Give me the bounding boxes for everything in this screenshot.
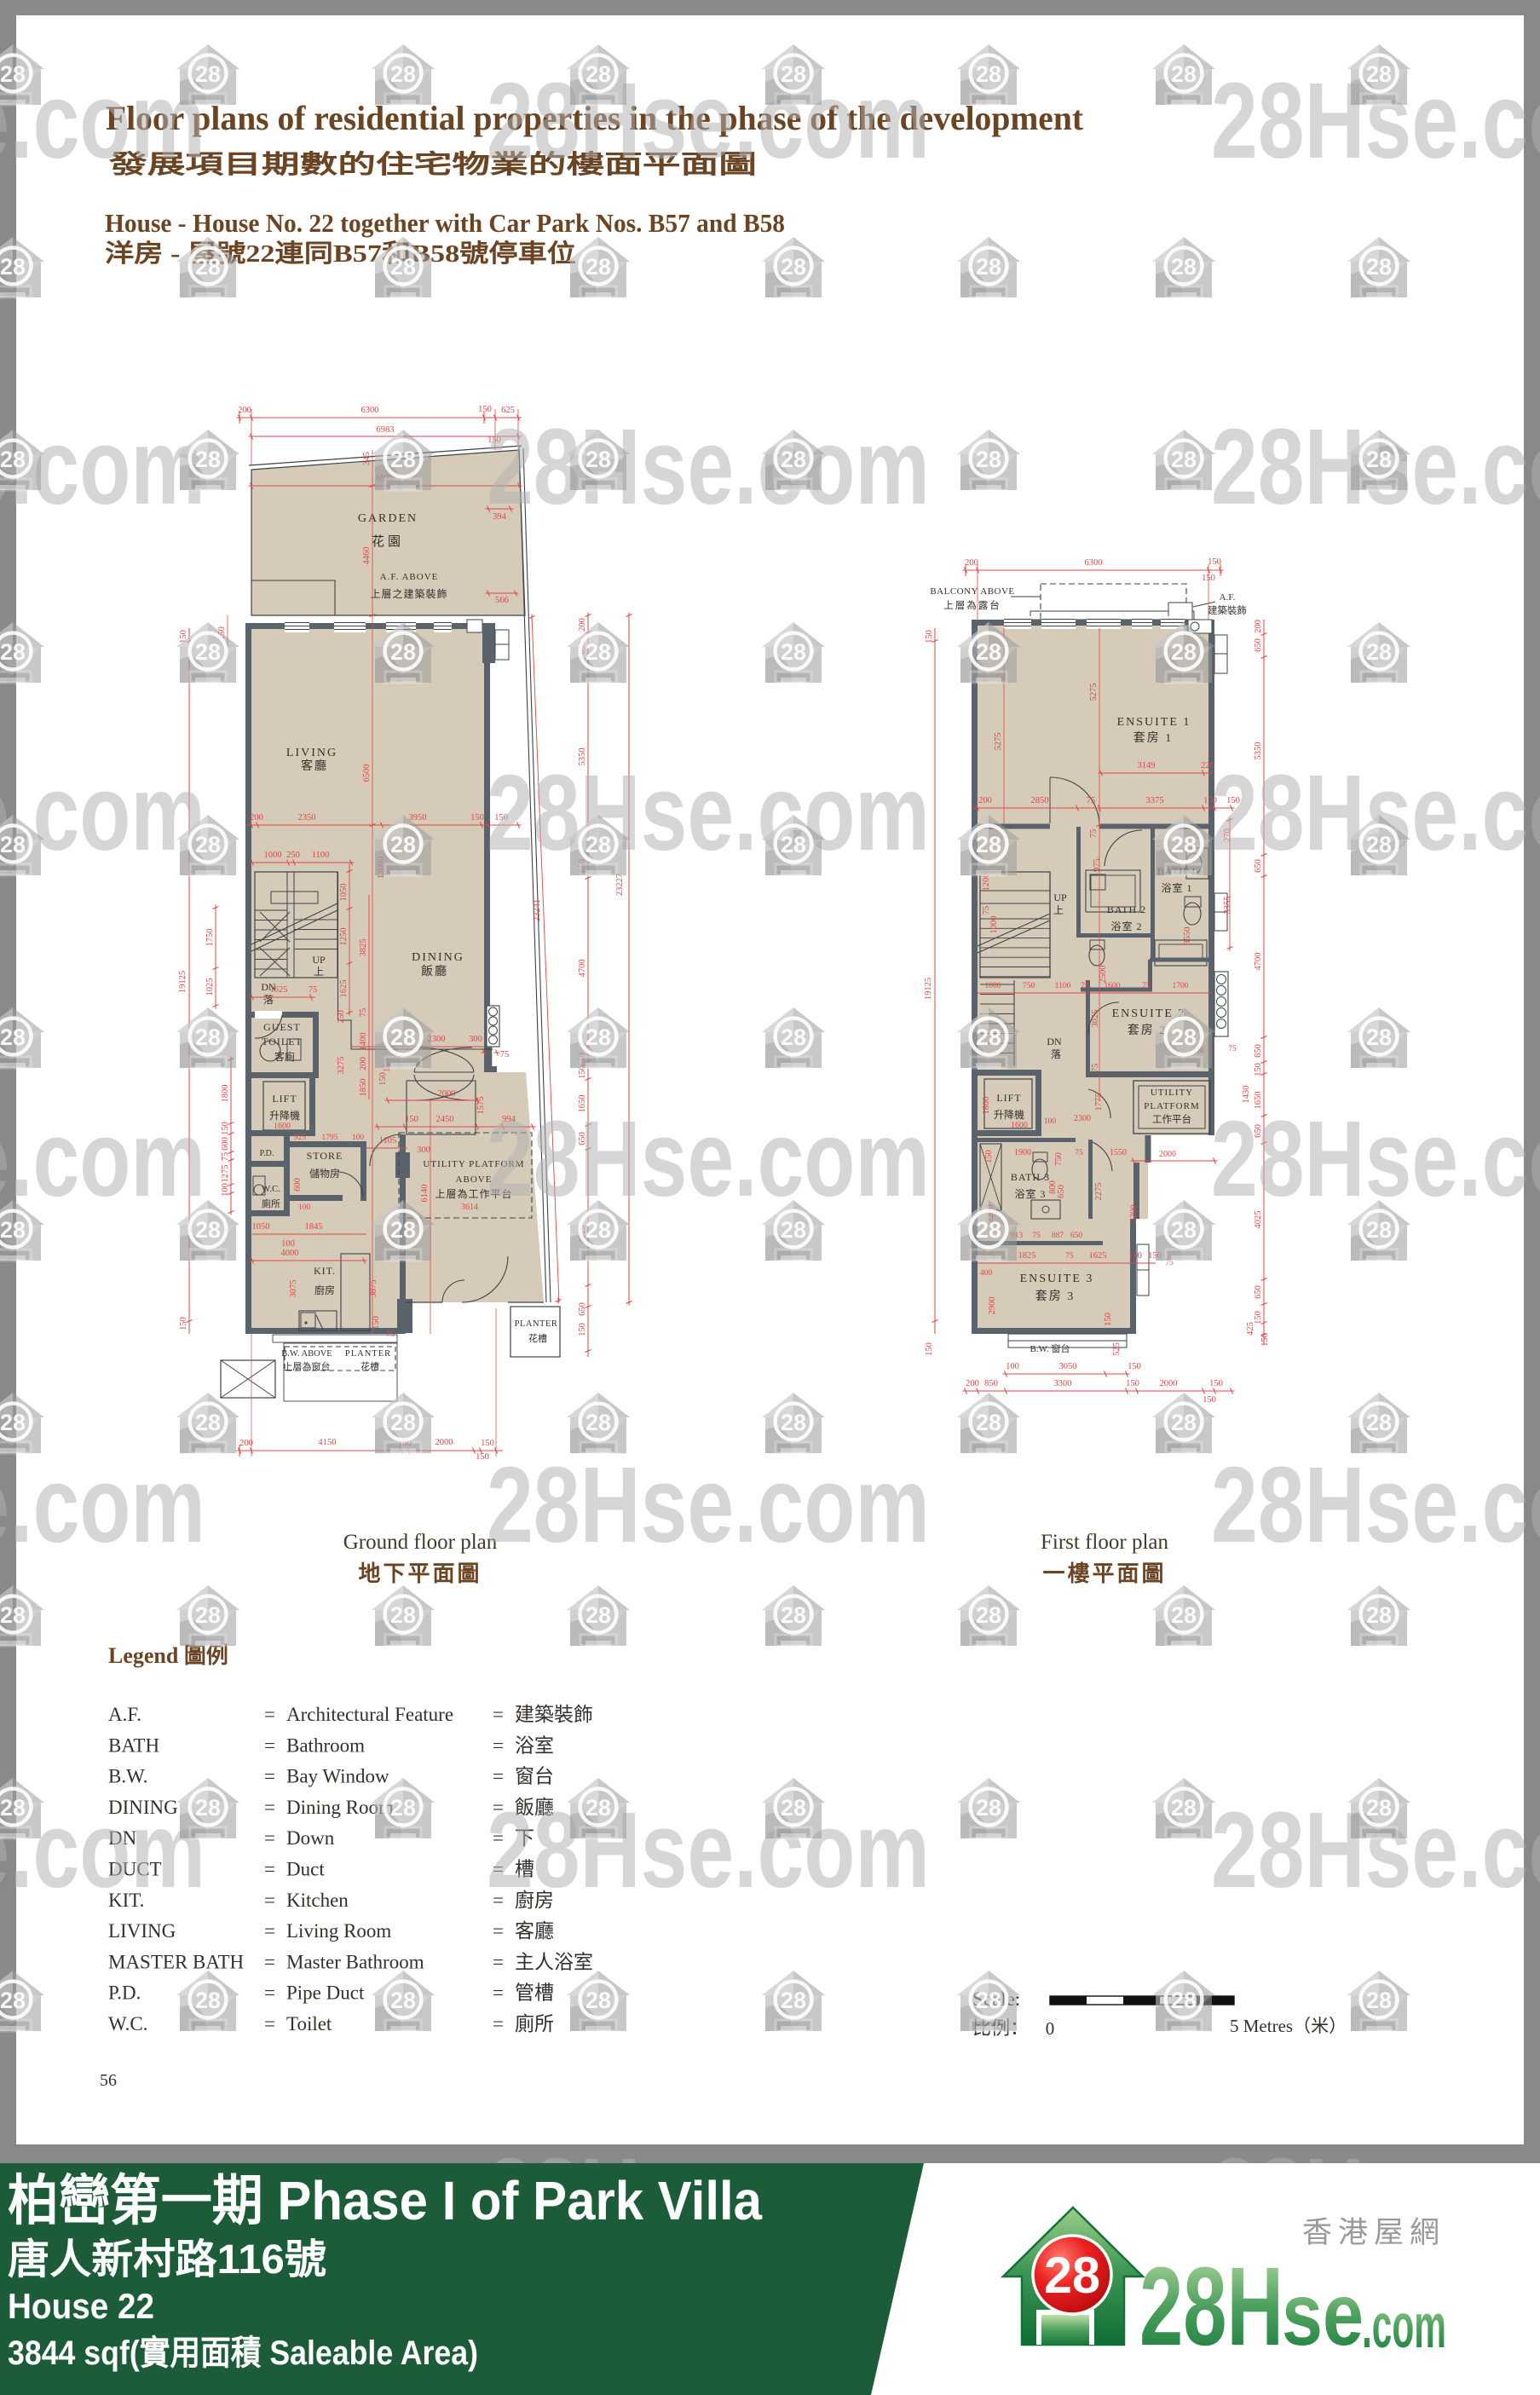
svg-text:150: 150 xyxy=(1128,1362,1141,1371)
svg-text:DUCT: DUCT xyxy=(108,1859,162,1880)
svg-text:75: 75 xyxy=(982,906,991,915)
svg-text:75: 75 xyxy=(359,1008,368,1018)
svg-text:=: = xyxy=(264,1890,275,1911)
svg-text:浴室: 浴室 xyxy=(515,1734,554,1756)
svg-text:913: 913 xyxy=(1011,1232,1024,1240)
svg-text:2200: 2200 xyxy=(986,1205,995,1223)
svg-text:Dining Room: Dining Room xyxy=(286,1797,394,1818)
svg-text:525: 525 xyxy=(1112,1342,1122,1356)
svg-text:1600: 1600 xyxy=(1011,1121,1028,1130)
svg-text:1550: 1550 xyxy=(1110,1148,1127,1157)
svg-text:A.F.: A.F. xyxy=(108,1704,141,1725)
svg-text:客廁: 客廁 xyxy=(274,1050,295,1063)
svg-text:=: = xyxy=(264,1951,275,1972)
svg-text:3550: 3550 xyxy=(1183,927,1192,945)
svg-text:=: = xyxy=(264,1920,275,1942)
svg-text:2000: 2000 xyxy=(438,1089,456,1099)
svg-text:ENSUITE 2: ENSUITE 2 xyxy=(1112,1007,1186,1020)
svg-text:Bay Window: Bay Window xyxy=(286,1766,389,1787)
svg-text:3355: 3355 xyxy=(1223,897,1232,915)
svg-text:=: = xyxy=(493,1890,504,1911)
svg-text:LIFT: LIFT xyxy=(272,1093,297,1105)
svg-text:75: 75 xyxy=(1081,982,1089,990)
svg-text:925: 925 xyxy=(294,1134,307,1142)
svg-text:650: 650 xyxy=(578,1132,587,1146)
svg-text:主人浴室: 主人浴室 xyxy=(515,1951,593,1972)
svg-text:3825: 3825 xyxy=(359,939,368,957)
svg-text:600: 600 xyxy=(221,1137,230,1151)
svg-text:6983: 6983 xyxy=(377,425,395,435)
svg-text:600: 600 xyxy=(293,1178,303,1192)
svg-text:200: 200 xyxy=(359,1057,368,1071)
svg-text:1275: 1275 xyxy=(221,1165,230,1183)
svg-text:BATH 3: BATH 3 xyxy=(1011,1171,1050,1183)
svg-text:200: 200 xyxy=(965,558,978,568)
svg-text:GUEST: GUEST xyxy=(263,1021,301,1033)
svg-text:Toilet: Toilet xyxy=(286,2013,332,2034)
svg-text:1650: 1650 xyxy=(578,1095,587,1113)
svg-text:STORE: STORE xyxy=(307,1150,343,1162)
svg-text:650: 650 xyxy=(578,1053,587,1066)
svg-text:75: 75 xyxy=(1142,982,1151,990)
svg-text:650: 650 xyxy=(1254,638,1263,652)
svg-text:5350: 5350 xyxy=(578,748,587,766)
svg-text:浴室 2: 浴室 2 xyxy=(1110,920,1142,932)
svg-text:上層為露台: 上層為露台 xyxy=(943,599,1001,611)
svg-text:=: = xyxy=(493,1982,504,2004)
svg-text:650: 650 xyxy=(1254,1124,1263,1138)
svg-text:200: 200 xyxy=(578,618,587,632)
svg-text:1775: 1775 xyxy=(1094,1094,1104,1111)
svg-text:Architectural Feature: Architectural Feature xyxy=(286,1704,453,1725)
svg-text:2000: 2000 xyxy=(1160,1379,1178,1388)
svg-text:23241: 23241 xyxy=(533,899,542,921)
svg-text:Floor plans of residential pro: Floor plans of residential properties in… xyxy=(106,99,1084,137)
svg-text:UTILITY: UTILITY xyxy=(1151,1088,1193,1098)
svg-text:200: 200 xyxy=(978,796,992,805)
svg-text:300: 300 xyxy=(417,1146,430,1155)
svg-text:1105: 1105 xyxy=(379,1136,397,1146)
svg-text:994: 994 xyxy=(502,1115,516,1124)
svg-text:2500: 2500 xyxy=(1099,966,1108,984)
svg-text:5200: 5200 xyxy=(1129,1205,1139,1223)
svg-text:200: 200 xyxy=(1254,620,1263,633)
svg-text:2275: 2275 xyxy=(1094,1183,1104,1201)
svg-text:887: 887 xyxy=(1052,1232,1064,1240)
svg-text:150: 150 xyxy=(1203,1395,1216,1405)
svg-text:5275: 5275 xyxy=(994,733,1003,751)
svg-text:升降機: 升降機 xyxy=(269,1109,300,1122)
svg-text:=: = xyxy=(264,1982,275,2004)
svg-text:150: 150 xyxy=(487,436,501,445)
svg-text:150: 150 xyxy=(383,1059,392,1072)
svg-text:KIT.: KIT. xyxy=(314,1265,336,1277)
svg-text:150: 150 xyxy=(1260,1333,1270,1347)
svg-text:=: = xyxy=(264,1859,275,1880)
svg-text:GARDEN: GARDEN xyxy=(358,512,418,525)
svg-text:3950: 3950 xyxy=(409,813,427,822)
svg-text:75: 75 xyxy=(1089,829,1099,839)
svg-text:625: 625 xyxy=(501,406,515,415)
svg-text:150: 150 xyxy=(405,1115,418,1124)
svg-text:=: = xyxy=(493,1734,504,1756)
svg-text:800: 800 xyxy=(1048,1180,1058,1194)
svg-text:Living Room: Living Room xyxy=(286,1920,391,1942)
svg-text:5350: 5350 xyxy=(1254,742,1263,760)
svg-text:19125: 19125 xyxy=(924,978,933,1000)
svg-text:75: 75 xyxy=(987,1252,995,1261)
svg-text:Down: Down xyxy=(286,1827,335,1849)
svg-text:650: 650 xyxy=(1254,1285,1263,1299)
svg-text:se: se xyxy=(1282,2265,1364,2364)
svg-text:345: 345 xyxy=(362,452,372,465)
svg-text:1845: 1845 xyxy=(305,1222,323,1232)
svg-text:4700: 4700 xyxy=(578,960,587,978)
svg-text:花槽: 花槽 xyxy=(360,1361,379,1372)
svg-text:1100: 1100 xyxy=(312,851,330,860)
svg-text:Bathroom: Bathroom xyxy=(286,1734,365,1756)
svg-text:300: 300 xyxy=(1191,1047,1204,1055)
svg-text:56: 56 xyxy=(100,2071,117,2090)
svg-text:4150: 4150 xyxy=(319,1438,337,1447)
svg-text:1600: 1600 xyxy=(274,1122,291,1131)
svg-text:一樓平面圖: 一樓平面圖 xyxy=(1042,1561,1166,1586)
svg-text:管槽: 管槽 xyxy=(515,1982,554,2004)
svg-text:75: 75 xyxy=(1228,1045,1237,1053)
svg-text:4025: 4025 xyxy=(1254,1211,1263,1229)
svg-text:6500: 6500 xyxy=(362,765,372,782)
svg-text:=: = xyxy=(264,1766,275,1787)
svg-text:1025: 1025 xyxy=(205,978,215,996)
svg-text:A.F. ABOVE: A.F. ABOVE xyxy=(380,572,439,582)
svg-text:儲物房: 儲物房 xyxy=(309,1167,340,1180)
svg-text:唐人新村路116號: 唐人新村路116號 xyxy=(8,2236,326,2282)
svg-text:12000: 12000 xyxy=(377,857,386,879)
svg-text:150: 150 xyxy=(398,1439,412,1448)
svg-text:150: 150 xyxy=(1226,796,1240,805)
svg-text:3050: 3050 xyxy=(1059,1362,1077,1371)
svg-text:=: = xyxy=(264,1704,275,1725)
svg-text:3614: 3614 xyxy=(461,1203,478,1212)
svg-text:B.W. ABOVE: B.W. ABOVE xyxy=(281,1349,332,1359)
svg-text:建築裝飾: 建築裝飾 xyxy=(1208,604,1247,616)
svg-text:75: 75 xyxy=(221,1152,230,1162)
svg-text:1825: 1825 xyxy=(1018,1251,1036,1261)
svg-text:上層為窗台: 上層為窗台 xyxy=(284,1360,331,1372)
svg-text:BATH 1: BATH 1 xyxy=(1157,865,1197,877)
svg-text:First floor plan: First floor plan xyxy=(1041,1531,1168,1554)
svg-text:650: 650 xyxy=(1070,1232,1083,1240)
svg-text:PLATFORM: PLATFORM xyxy=(1144,1101,1199,1111)
svg-text:150: 150 xyxy=(476,1452,489,1462)
svg-text:100: 100 xyxy=(1044,1117,1057,1126)
svg-text:650: 650 xyxy=(1057,1185,1066,1198)
svg-text:1625: 1625 xyxy=(1089,1251,1107,1261)
svg-text:150: 150 xyxy=(1208,557,1221,567)
svg-text:香港屋網: 香港屋網 xyxy=(1302,2216,1445,2249)
svg-text:650: 650 xyxy=(1254,859,1263,873)
svg-text:150: 150 xyxy=(221,1122,230,1135)
svg-text:750: 750 xyxy=(1023,982,1035,990)
svg-text:P.D.: P.D. xyxy=(260,1149,274,1158)
svg-text:200: 200 xyxy=(250,813,263,822)
svg-text:150: 150 xyxy=(478,405,492,414)
svg-text:套房 3: 套房 3 xyxy=(1035,1290,1076,1303)
svg-text:Duct: Duct xyxy=(286,1859,325,1880)
svg-text:落: 落 xyxy=(263,994,274,1006)
svg-text:75: 75 xyxy=(1091,1064,1100,1073)
svg-text:394: 394 xyxy=(493,512,507,522)
svg-text:PLANTER: PLANTER xyxy=(345,1349,391,1359)
svg-text:UP: UP xyxy=(1053,892,1067,903)
svg-text:1250: 1250 xyxy=(339,928,349,946)
svg-text:750: 750 xyxy=(1054,1152,1064,1166)
svg-text:4025: 4025 xyxy=(578,1226,587,1244)
svg-text:=: = xyxy=(493,1920,504,1942)
svg-text:=: = xyxy=(264,1827,275,1849)
svg-text:300: 300 xyxy=(469,1035,482,1044)
svg-text:3875: 3875 xyxy=(369,1280,378,1298)
svg-text:4700: 4700 xyxy=(1254,953,1263,971)
svg-text:ENSUITE 3: ENSUITE 3 xyxy=(1020,1273,1094,1285)
svg-text:=: = xyxy=(493,1797,504,1818)
svg-text:566: 566 xyxy=(495,596,509,605)
svg-text:下: 下 xyxy=(515,1827,534,1849)
svg-text:1750: 1750 xyxy=(205,929,215,947)
svg-text:DINING: DINING xyxy=(412,951,464,964)
svg-text:B.W.: B.W. xyxy=(108,1766,147,1787)
svg-text:KIT.: KIT. xyxy=(108,1890,144,1911)
svg-text:6300: 6300 xyxy=(361,406,379,415)
svg-text:650: 650 xyxy=(578,641,587,655)
svg-text:上: 上 xyxy=(1053,904,1064,916)
svg-text:650: 650 xyxy=(578,859,587,873)
svg-text:200: 200 xyxy=(966,1379,979,1388)
svg-text:MASTER BATH: MASTER BATH xyxy=(108,1951,244,1972)
svg-text:425: 425 xyxy=(1246,1322,1255,1336)
svg-text:650: 650 xyxy=(1254,1044,1263,1058)
svg-text:客廳: 客廳 xyxy=(515,1920,554,1942)
svg-text:=: = xyxy=(264,1797,275,1818)
svg-text:28H: 28H xyxy=(1139,2243,1283,2369)
svg-text:75: 75 xyxy=(1165,1259,1174,1267)
svg-text:P.D.: P.D. xyxy=(108,1982,141,2004)
svg-text:1900: 1900 xyxy=(1014,1148,1031,1157)
svg-text:=: = xyxy=(493,1766,504,1787)
svg-text:1575: 1575 xyxy=(476,1097,486,1115)
svg-text:1625: 1625 xyxy=(270,985,288,995)
svg-text:3149: 3149 xyxy=(1138,761,1156,770)
svg-text:=: = xyxy=(493,1951,504,1972)
svg-text:=: = xyxy=(493,1827,504,1849)
svg-text:廚房: 廚房 xyxy=(314,1284,335,1296)
svg-text:75: 75 xyxy=(309,985,318,995)
svg-text:=: = xyxy=(493,1859,504,1880)
svg-text:BATH: BATH xyxy=(108,1734,159,1756)
svg-text:PLANTER: PLANTER xyxy=(515,1319,558,1329)
svg-text:ENSUITE 1: ENSUITE 1 xyxy=(1117,716,1191,729)
svg-text:1000: 1000 xyxy=(985,982,1001,990)
svg-text:1050: 1050 xyxy=(339,884,349,902)
svg-text:2000: 2000 xyxy=(1159,1150,1176,1159)
svg-text:150: 150 xyxy=(1126,1379,1139,1388)
svg-text:75: 75 xyxy=(1075,1149,1083,1157)
svg-text:UTILITY PLATFORM: UTILITY PLATFORM xyxy=(423,1159,524,1169)
svg-text:6300: 6300 xyxy=(1085,558,1103,568)
svg-text:LIVING: LIVING xyxy=(286,747,337,759)
svg-text:廁所: 廁所 xyxy=(515,2013,554,2034)
svg-text:19125: 19125 xyxy=(178,971,187,993)
svg-text:A.F.: A.F. xyxy=(1220,592,1236,603)
svg-text:升降機: 升降機 xyxy=(994,1108,1024,1121)
svg-text:150: 150 xyxy=(1203,796,1217,805)
svg-text:150: 150 xyxy=(217,626,227,640)
svg-text:2300: 2300 xyxy=(1074,1114,1091,1123)
svg-text:BALCONY ABOVE: BALCONY ABOVE xyxy=(930,586,1014,597)
svg-text:1400: 1400 xyxy=(359,1033,368,1051)
svg-text:150: 150 xyxy=(578,1323,587,1336)
svg-text:Pipe Duct: Pipe Duct xyxy=(286,1982,365,2004)
svg-text:150: 150 xyxy=(470,813,484,822)
svg-text:浴室 3: 浴室 3 xyxy=(1014,1187,1046,1200)
svg-text:浴室 1: 浴室 1 xyxy=(1161,881,1192,894)
svg-text:3375: 3375 xyxy=(1146,796,1164,805)
svg-text:1850: 1850 xyxy=(359,1079,368,1097)
svg-text:窗台: 窗台 xyxy=(515,1766,554,1787)
svg-text:3075: 3075 xyxy=(289,1280,298,1298)
svg-text:DINING: DINING xyxy=(108,1797,178,1818)
svg-text:226: 226 xyxy=(1201,761,1214,770)
svg-text:200: 200 xyxy=(239,1439,253,1448)
svg-text:975: 975 xyxy=(1093,858,1102,872)
svg-text:1800: 1800 xyxy=(982,1097,991,1115)
svg-text:1700: 1700 xyxy=(1173,982,1189,990)
svg-text:1100: 1100 xyxy=(1055,982,1071,990)
svg-text:150: 150 xyxy=(378,1072,388,1086)
svg-text:=: = xyxy=(264,2013,275,2034)
svg-text:100: 100 xyxy=(281,1239,295,1249)
svg-text:75: 75 xyxy=(1065,1252,1074,1261)
svg-text:270: 270 xyxy=(1223,828,1232,842)
svg-text:House 22: House 22 xyxy=(8,2286,154,2326)
svg-text:=: = xyxy=(493,2013,504,2034)
svg-text:ABOVE: ABOVE xyxy=(456,1174,493,1185)
svg-text:W.C.: W.C. xyxy=(108,2013,147,2034)
svg-text:150: 150 xyxy=(925,1342,934,1356)
svg-text:100: 100 xyxy=(221,1183,230,1197)
svg-text:150: 150 xyxy=(925,630,934,643)
svg-text:花槽: 花槽 xyxy=(528,1333,547,1344)
svg-text:3025: 3025 xyxy=(1091,1010,1100,1028)
svg-text:150: 150 xyxy=(481,1439,494,1448)
svg-text:23227: 23227 xyxy=(615,874,625,896)
svg-text:150: 150 xyxy=(1254,1063,1263,1076)
svg-text:House - House No. 22 together: House - House No. 22 together with Car P… xyxy=(105,208,785,238)
svg-text:100: 100 xyxy=(352,1134,365,1142)
svg-text:2450: 2450 xyxy=(436,1115,454,1124)
svg-text:1050: 1050 xyxy=(252,1222,270,1232)
svg-text:150: 150 xyxy=(578,1065,587,1079)
svg-text:套房 1: 套房 1 xyxy=(1133,731,1174,745)
svg-text:=: = xyxy=(493,1704,504,1725)
svg-text:Ground floor plan: Ground floor plan xyxy=(343,1531,498,1554)
svg-text:2850: 2850 xyxy=(1031,796,1049,805)
svg-text:150: 150 xyxy=(494,813,508,822)
svg-text:洋房 - 屋號22連同B57和B58號停車位: 洋房 - 屋號22連同B57和B58號停車位 xyxy=(105,239,576,268)
svg-text:地下平面圖: 地下平面圖 xyxy=(358,1561,482,1586)
svg-text:2300: 2300 xyxy=(428,1035,446,1044)
svg-text:1000: 1000 xyxy=(989,916,999,934)
svg-text:250: 250 xyxy=(337,1010,346,1024)
svg-text:2000: 2000 xyxy=(435,1438,453,1447)
svg-text:28: 28 xyxy=(1044,2247,1100,2304)
svg-text:槽: 槽 xyxy=(515,1859,534,1880)
svg-text:上: 上 xyxy=(314,966,324,978)
svg-text:75: 75 xyxy=(386,1330,395,1339)
svg-text:100: 100 xyxy=(1006,1362,1019,1371)
svg-text:150: 150 xyxy=(1148,1251,1162,1261)
svg-text:5 Metres（米）: 5 Metres（米） xyxy=(1230,2016,1347,2036)
svg-text:150: 150 xyxy=(372,1316,381,1330)
svg-text:Legend 圖例: Legend 圖例 xyxy=(108,1643,228,1668)
svg-text:4460: 4460 xyxy=(362,547,372,565)
svg-text:1650: 1650 xyxy=(1254,1092,1263,1110)
svg-text:75: 75 xyxy=(1032,1232,1041,1240)
svg-text:100: 100 xyxy=(298,1203,311,1212)
svg-text:柏巒第一期 Phase I of Park Villa: 柏巒第一期 Phase I of Park Villa xyxy=(8,2170,762,2231)
svg-text:3300: 3300 xyxy=(1054,1379,1072,1388)
svg-text:150: 150 xyxy=(179,630,188,643)
svg-text:Scale:: Scale: xyxy=(972,1988,1020,2010)
svg-text:套房 2: 套房 2 xyxy=(1128,1024,1168,1037)
svg-text:Master Bathroom: Master Bathroom xyxy=(286,1951,424,1972)
svg-text:1000: 1000 xyxy=(264,851,282,860)
svg-text:飯廳: 飯廳 xyxy=(421,964,448,978)
svg-text:UP: UP xyxy=(312,954,326,966)
svg-text:5275: 5275 xyxy=(1089,684,1099,701)
svg-text:發展項目期數的住宅物業的樓面平面圖: 發展項目期數的住宅物業的樓面平面圖 xyxy=(108,150,757,179)
svg-text:1795: 1795 xyxy=(322,1134,338,1142)
svg-text:TOILET: TOILET xyxy=(262,1036,303,1047)
svg-text:1430: 1430 xyxy=(1242,1086,1251,1104)
svg-text:客廳: 客廳 xyxy=(301,759,328,773)
svg-text:2900: 2900 xyxy=(988,1297,997,1315)
svg-text:4000: 4000 xyxy=(281,1249,299,1258)
svg-text:1625: 1625 xyxy=(339,980,349,998)
svg-text:150: 150 xyxy=(984,1150,994,1163)
svg-text:400: 400 xyxy=(980,1269,993,1278)
svg-text:0: 0 xyxy=(1046,2018,1055,2039)
svg-text:廁所: 廁所 xyxy=(262,1197,280,1209)
svg-text:75: 75 xyxy=(1087,796,1096,805)
svg-text:DN: DN xyxy=(1047,1036,1062,1047)
svg-text:3275: 3275 xyxy=(337,1057,346,1075)
svg-text:.com: .com xyxy=(1362,2292,1446,2361)
svg-text:3844 sqf(實用面積 Saleable Area): 3844 sqf(實用面積 Saleable Area) xyxy=(8,2334,478,2372)
svg-text:650: 650 xyxy=(578,1302,587,1316)
svg-text:LIVING: LIVING xyxy=(108,1920,176,1942)
svg-text:150: 150 xyxy=(1104,1313,1113,1326)
svg-text:落: 落 xyxy=(1051,1048,1061,1060)
svg-text:75: 75 xyxy=(500,1050,510,1059)
svg-text:LIFT: LIFT xyxy=(996,1092,1021,1104)
svg-text:Kitchen: Kitchen xyxy=(286,1890,349,1911)
svg-text:花園: 花園 xyxy=(372,534,404,549)
svg-text:DN: DN xyxy=(108,1827,137,1849)
svg-text:6140: 6140 xyxy=(420,1185,430,1203)
svg-text:上層之建築裝飾: 上層之建築裝飾 xyxy=(370,587,447,600)
svg-text:=: = xyxy=(264,1734,275,1756)
